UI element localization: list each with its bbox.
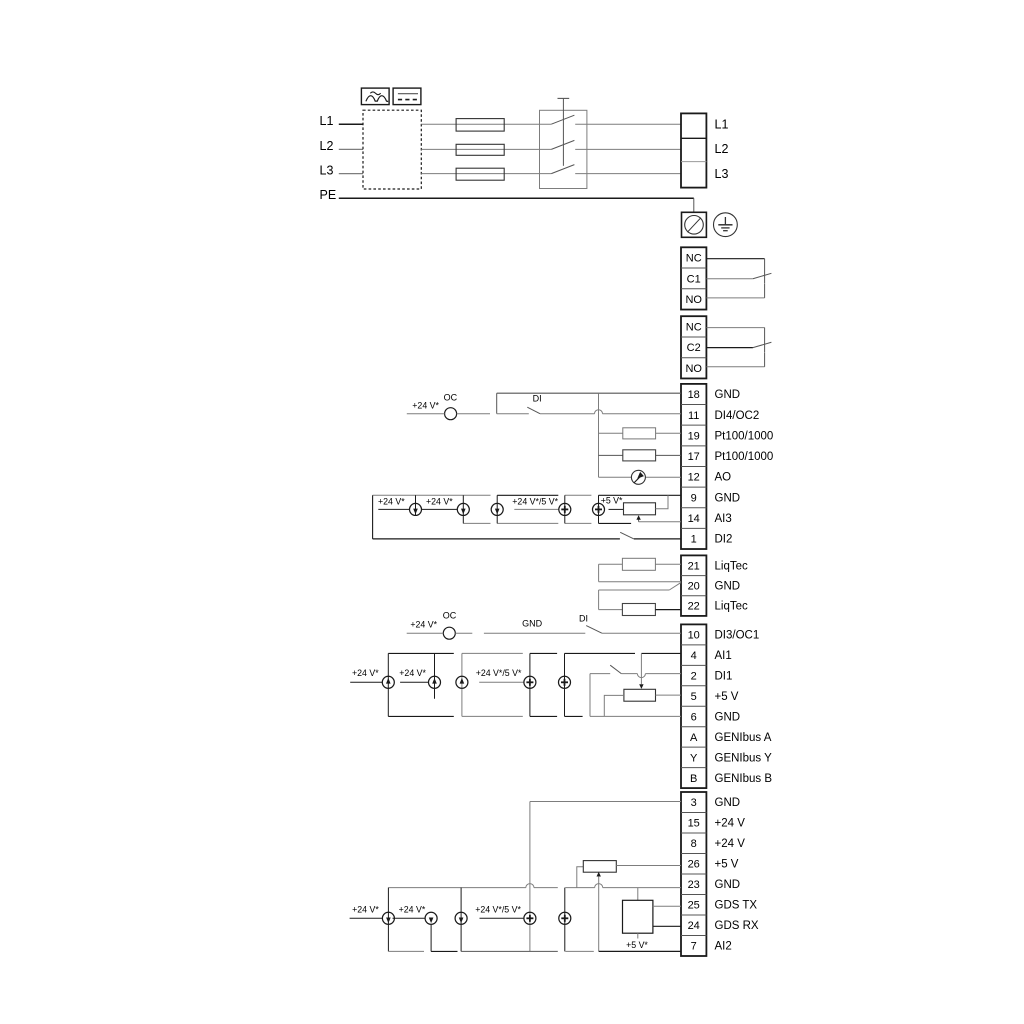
svg-text:LiqTec: LiqTec xyxy=(715,601,748,613)
svg-text:7: 7 xyxy=(691,941,697,953)
svg-text:Y: Y xyxy=(690,752,698,764)
svg-text:GND: GND xyxy=(715,797,741,809)
svg-text:B: B xyxy=(690,773,697,785)
svg-text:DI4/OC2: DI4/OC2 xyxy=(715,410,760,422)
svg-text:1: 1 xyxy=(691,534,697,546)
svg-text:GENIbus Y: GENIbus Y xyxy=(715,752,773,764)
svg-text:11: 11 xyxy=(688,410,699,422)
svg-text:AI3: AI3 xyxy=(715,513,732,525)
svg-text:OC: OC xyxy=(444,392,458,402)
svg-text:NO: NO xyxy=(685,363,702,375)
svg-text:GENIbus A: GENIbus A xyxy=(715,732,772,744)
svg-text:20: 20 xyxy=(688,581,700,593)
svg-text:+24 V*: +24 V* xyxy=(410,620,437,630)
svg-text:PE: PE xyxy=(320,188,337,202)
svg-text:+24 V*: +24 V* xyxy=(378,497,405,507)
svg-text:+24 V: +24 V xyxy=(715,838,746,850)
svg-text:+5 V*: +5 V* xyxy=(626,940,648,950)
svg-text:L2: L2 xyxy=(320,139,334,153)
svg-text:Pt100/1000: Pt100/1000 xyxy=(715,451,774,463)
svg-text:GDS RX: GDS RX xyxy=(715,920,759,932)
svg-text:AI2: AI2 xyxy=(715,941,732,953)
svg-text:AO: AO xyxy=(715,472,732,484)
svg-text:26: 26 xyxy=(688,859,700,871)
svg-text:12: 12 xyxy=(688,472,700,484)
svg-text:L3: L3 xyxy=(715,167,729,181)
svg-text:L3: L3 xyxy=(320,164,334,178)
svg-text:+24 V*/5 V*: +24 V*/5 V* xyxy=(475,905,521,915)
svg-text:GENIbus B: GENIbus B xyxy=(715,773,773,785)
svg-text:+5 V*: +5 V* xyxy=(601,496,623,506)
svg-text:2: 2 xyxy=(691,670,697,682)
svg-text:NO: NO xyxy=(685,294,702,306)
svg-text:4: 4 xyxy=(691,650,697,662)
svg-text:GND: GND xyxy=(715,879,741,891)
svg-text:5: 5 xyxy=(691,691,697,703)
svg-text:18: 18 xyxy=(688,389,700,401)
svg-text:+24 V: +24 V xyxy=(715,818,746,830)
svg-text:23: 23 xyxy=(688,879,700,891)
svg-text:17: 17 xyxy=(688,451,700,463)
svg-text:GND: GND xyxy=(715,581,741,593)
svg-text:10: 10 xyxy=(688,630,700,642)
svg-text:+5 V: +5 V xyxy=(715,691,739,703)
svg-text:+24 V*: +24 V* xyxy=(352,668,379,678)
svg-text:22: 22 xyxy=(688,601,700,613)
svg-text:24: 24 xyxy=(688,920,700,932)
svg-text:C1: C1 xyxy=(687,273,701,285)
svg-text:GND: GND xyxy=(715,389,741,401)
svg-text:GND: GND xyxy=(715,711,741,723)
svg-text:14: 14 xyxy=(688,513,700,525)
svg-text:GND: GND xyxy=(522,619,543,629)
svg-text:A: A xyxy=(690,732,698,744)
svg-text:DI3/OC1: DI3/OC1 xyxy=(715,630,760,642)
svg-text:3: 3 xyxy=(691,797,697,809)
svg-text:+24 V*: +24 V* xyxy=(399,668,426,678)
svg-text:25: 25 xyxy=(688,900,700,912)
svg-text:+24 V*: +24 V* xyxy=(399,905,426,915)
svg-text:+24 V*: +24 V* xyxy=(352,905,379,915)
svg-text:Pt100/1000: Pt100/1000 xyxy=(715,430,774,442)
svg-text:GDS TX: GDS TX xyxy=(715,900,758,912)
svg-text:+24 V*/5 V*: +24 V*/5 V* xyxy=(512,497,558,507)
svg-text:C2: C2 xyxy=(687,342,701,354)
svg-text:L1: L1 xyxy=(320,114,334,128)
svg-text:+24 V*/5 V*: +24 V*/5 V* xyxy=(476,668,522,678)
svg-text:L1: L1 xyxy=(715,117,729,131)
svg-text:GND: GND xyxy=(715,492,741,504)
svg-text:DI: DI xyxy=(533,393,542,403)
svg-text:6: 6 xyxy=(691,711,697,723)
svg-text:DI1: DI1 xyxy=(715,670,733,682)
svg-text:LiqTec: LiqTec xyxy=(715,560,748,572)
svg-text:+5 V: +5 V xyxy=(715,859,739,871)
svg-text:OC: OC xyxy=(443,611,457,621)
svg-text:15: 15 xyxy=(688,818,700,830)
svg-text:+24 V*: +24 V* xyxy=(426,497,453,507)
svg-text:+24 V*: +24 V* xyxy=(412,400,439,410)
svg-text:L2: L2 xyxy=(715,142,729,156)
svg-text:NC: NC xyxy=(686,321,702,333)
svg-text:21: 21 xyxy=(688,560,700,572)
svg-text:DI: DI xyxy=(579,613,588,623)
svg-text:AI1: AI1 xyxy=(715,650,732,662)
svg-text:NC: NC xyxy=(686,253,702,265)
svg-text:8: 8 xyxy=(691,838,697,850)
svg-text:19: 19 xyxy=(688,430,700,442)
svg-text:DI2: DI2 xyxy=(715,534,733,546)
svg-text:9: 9 xyxy=(691,492,697,504)
